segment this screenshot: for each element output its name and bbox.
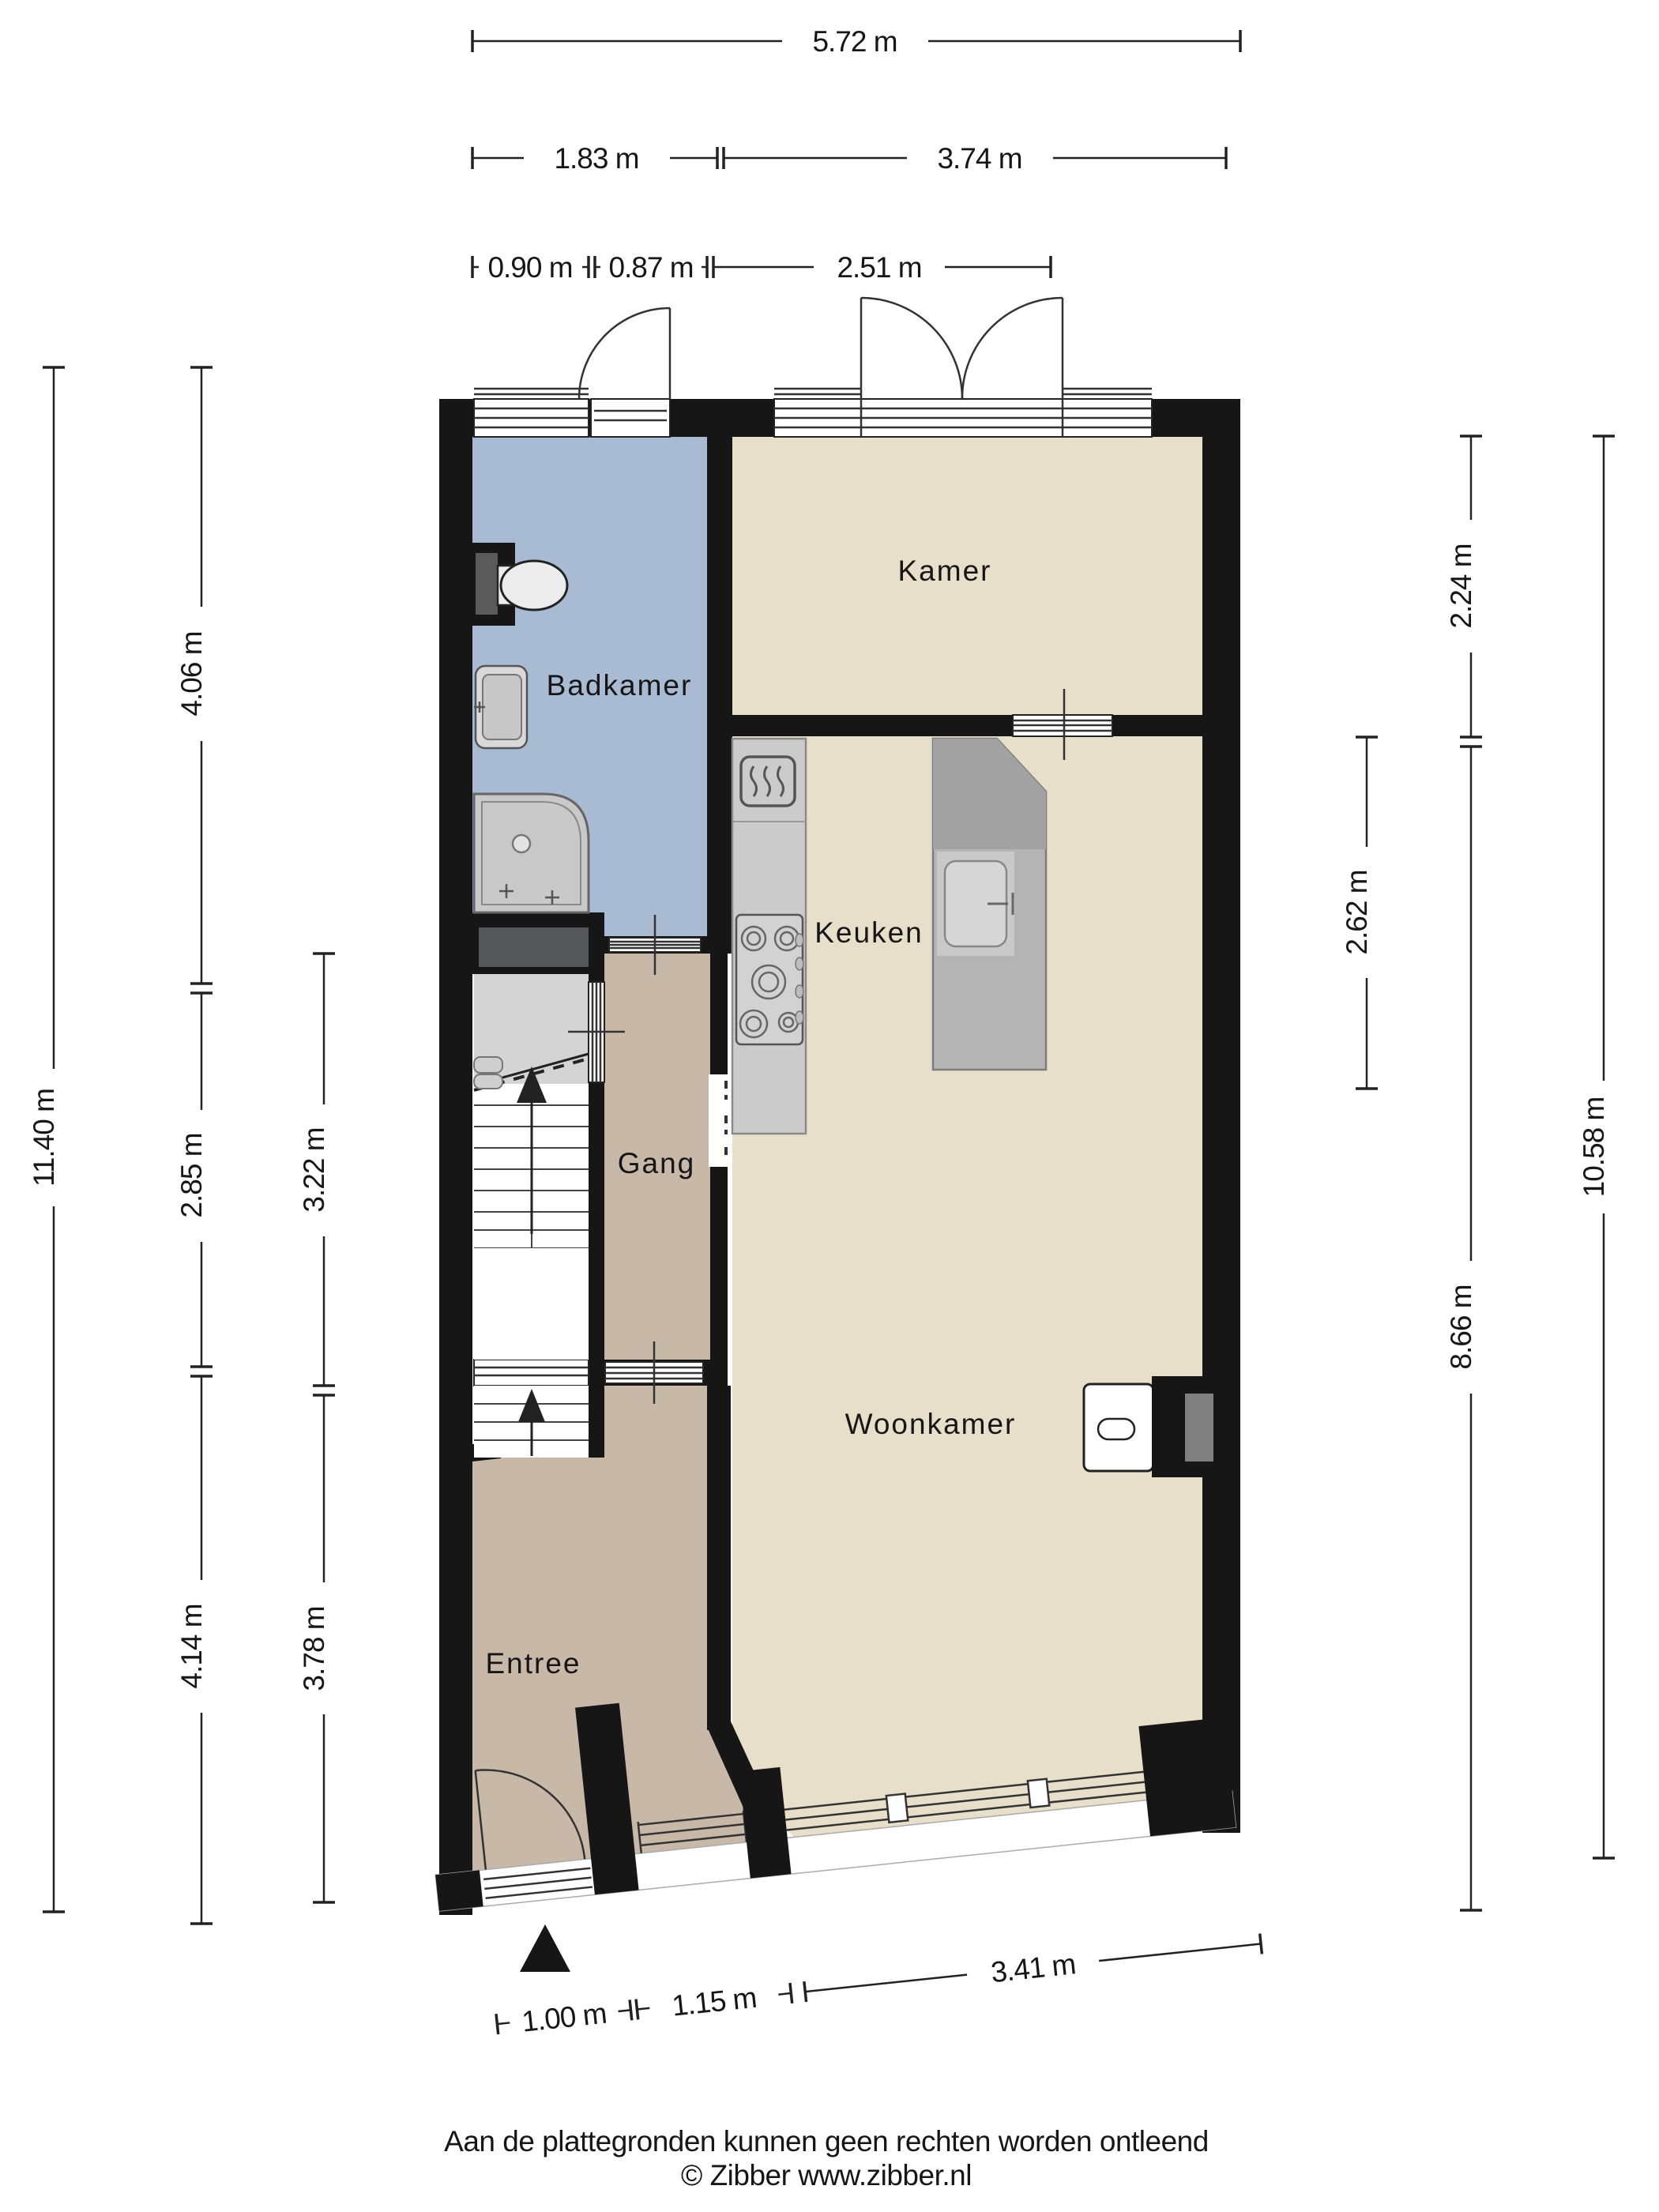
- dim-top-badkamer: 1.83 m: [554, 142, 638, 175]
- label-keuken: Keuken: [814, 916, 924, 949]
- dims-bottom: 1.00 m 1.15 m 3.41 m: [495, 1928, 1262, 2041]
- dim-top-door: 0.87 m: [608, 251, 693, 284]
- french-door-left-swing: [861, 298, 962, 399]
- floorplan-page: 1.00 m 1.15 m 3.41 m Badkamer Kamer Keuk…: [0, 0, 1659, 2212]
- dims-left: 11.40 m 4.06 m 2.85 m 4.14 m 3.22 m 3.78…: [28, 367, 335, 1924]
- label-entree: Entree: [485, 1647, 581, 1680]
- dim-bottom-2: 1.15 m: [670, 1981, 758, 2022]
- facade-corner-left: [435, 1870, 483, 1911]
- toilet-bowl: [501, 561, 567, 610]
- dim-left-gang: 2.85 m: [175, 1133, 208, 1217]
- label-badkamer: Badkamer: [547, 669, 693, 702]
- wall-left: [439, 399, 472, 1915]
- dim-right-keuken: 2.62 m: [1341, 870, 1373, 954]
- dim-top-window: 0.90 m: [487, 251, 572, 284]
- badkamer-door-swing: [579, 308, 670, 399]
- shower-drain: [513, 835, 530, 852]
- woonkamer-window-mullion-a: [886, 1794, 908, 1823]
- fireplace: [1084, 1376, 1224, 1477]
- badkamer-door-opening: [591, 399, 670, 437]
- label-kamer: Kamer: [898, 555, 992, 587]
- stairwell-south-band: [474, 1360, 589, 1386]
- dim-top-frenchdoors: 2.51 m: [837, 251, 921, 284]
- dim-bottom-3: 3.41 m: [989, 1947, 1077, 1988]
- footer-copyright: © Zibber www.zibber.nl: [681, 2159, 972, 2191]
- dim-right-kamer: 2.24 m: [1445, 544, 1477, 628]
- wall-keuken-west: [710, 954, 728, 1386]
- dims-right: 2.24 m 8.66 m 2.62 m 10.58 m: [1341, 436, 1615, 1910]
- badkamer-window-sill: [474, 389, 589, 394]
- dim-left-badkamer: 4.06 m: [175, 631, 208, 716]
- top-openings: [474, 298, 1152, 437]
- wall-entree-woonkamer: [707, 1386, 731, 1730]
- stairs-newel-b: [474, 1074, 502, 1089]
- fireplace-hearth: [1084, 1384, 1153, 1471]
- wall-right: [1202, 399, 1240, 1833]
- floorplan-canvas: 1.00 m 1.15 m 3.41 m Badkamer Kamer Keuk…: [0, 0, 1659, 2212]
- dim-left-entree: 4.14 m: [175, 1604, 208, 1688]
- dim-right-total: 10.58 m: [1578, 1097, 1610, 1198]
- washbasin-bowl: [483, 675, 521, 739]
- wall-kamer-south: [732, 715, 1202, 736]
- north-arrow-icon: [520, 1924, 570, 1972]
- dim-left-entree-inner: 3.78 m: [298, 1606, 330, 1691]
- wall-badkamer-kamer-divider: [707, 437, 732, 954]
- fireplace-firebox-inner: [1185, 1394, 1213, 1461]
- toilet-cistern: [476, 553, 498, 615]
- stairs-landing: [474, 1248, 589, 1360]
- label-gang: Gang: [618, 1147, 696, 1179]
- dim-left-total: 11.40 m: [28, 1089, 60, 1187]
- footer-disclaimer: Aan de plattegronden kunnen geen rechten…: [444, 2125, 1209, 2157]
- dim-bottom-1: 1.00 m: [521, 1997, 608, 2038]
- dim-right-woonkamer: 8.66 m: [1445, 1285, 1477, 1369]
- dim-left-gang-inner: 3.22 m: [298, 1127, 330, 1212]
- stairs-newel-a: [474, 1057, 502, 1073]
- footer: Aan de plattegronden kunnen geen rechten…: [444, 2125, 1209, 2191]
- french-door-right-swing: [962, 298, 1063, 399]
- dims-top: 5.72 m 1.83 m 3.74 m 0.90 m 0.87 m 2.51 …: [472, 25, 1240, 284]
- dim-top-kamer: 3.74 m: [937, 142, 1021, 175]
- label-woonkamer: Woonkamer: [845, 1408, 1017, 1440]
- facade-corner-right: [1138, 1717, 1236, 1837]
- woonkamer-window-mullion-b: [1028, 1779, 1049, 1808]
- staircase: [474, 1054, 589, 1458]
- dim-top-total: 5.72 m: [812, 25, 897, 58]
- niche-cupboard: [479, 927, 589, 967]
